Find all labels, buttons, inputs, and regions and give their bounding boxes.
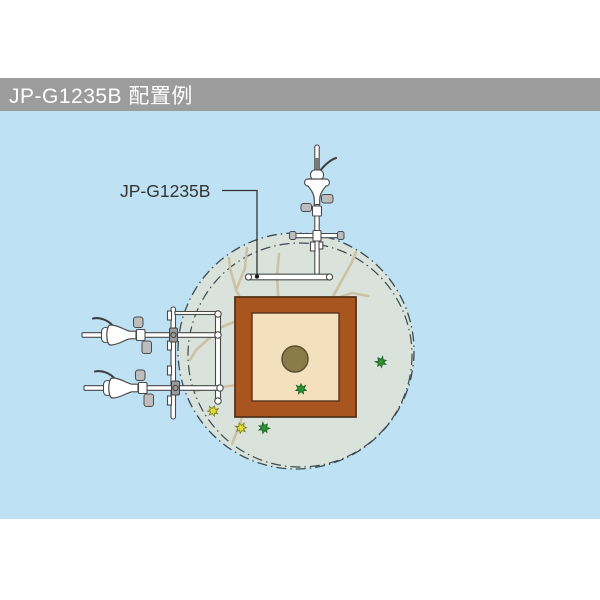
nozzle-clamp <box>313 206 322 216</box>
crossbar-end-left <box>245 274 251 280</box>
title-bar: JP-G1235B 配置例 <box>0 78 600 111</box>
page: { "header": { "title": "JP-G1235B 配置例" }… <box>0 0 600 600</box>
tree-trunk <box>282 346 308 372</box>
cross-arm-knob-right <box>338 232 345 240</box>
clamp-knob-right <box>322 195 334 204</box>
page-title: JP-G1235B 配置例 <box>9 80 193 110</box>
cross-arm-knob-left <box>290 232 297 240</box>
crossbar-end-right <box>326 274 332 280</box>
cross-lower-bit <box>311 242 316 251</box>
clamp-knob-left <box>301 204 312 212</box>
cross-lower-bit2 <box>319 242 323 249</box>
mounting-pole-clamp <box>168 307 176 419</box>
product-label: JP-G1235B <box>120 181 210 201</box>
cross-center-clamp <box>313 231 321 242</box>
placement-diagram: JP-G1235B <box>0 111 600 519</box>
leader-anchor-dot <box>255 274 259 278</box>
